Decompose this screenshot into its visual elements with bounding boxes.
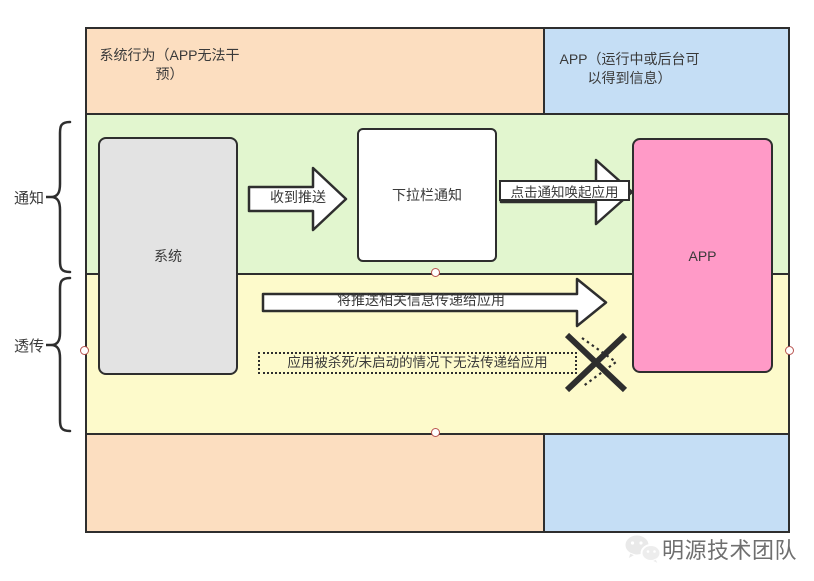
node-dropdown-label: 下拉栏通知 <box>392 185 462 205</box>
blocked-note-box: 应用被杀死/未启动的情况下无法传递给应用 <box>258 352 577 374</box>
connection-point <box>80 346 89 355</box>
diagram-canvas: 系统行为（APP无法干预） APP（运行中或后台可以得到信息） 通知 透传 系统… <box>0 0 814 581</box>
blocked-note-label: 应用被杀死/未启动的情况下无法传递给应用 <box>287 355 547 370</box>
node-system: 系统 <box>98 137 238 375</box>
node-app: APP <box>632 138 773 373</box>
arrow-click-notification-label: 点击通知唤起应用 <box>499 180 630 201</box>
lane-label-passthrough: 透传 <box>0 335 44 356</box>
footer-row <box>87 435 788 531</box>
header-title-app: APP（运行中或后台可以得到信息） <box>557 50 702 88</box>
connection-point <box>785 346 794 355</box>
brace-icon <box>46 276 74 433</box>
wechat-icon <box>622 531 662 567</box>
connection-point <box>431 428 440 437</box>
arrow-receive-push-label: 收到推送 <box>252 187 344 207</box>
watermark: 明源技术团队 <box>622 531 797 567</box>
watermark-text: 明源技术团队 <box>662 533 797 565</box>
footer-cell-system-behavior <box>87 435 543 531</box>
arrow-pass-info-label: 将推送相关信息传递给应用 <box>266 290 576 311</box>
connection-point <box>431 268 440 277</box>
node-app-label: APP <box>688 248 716 264</box>
header-title-system-behavior: 系统行为（APP无法干预） <box>97 46 242 84</box>
blocked-x-icon <box>556 328 636 398</box>
lane-label-notification: 通知 <box>0 187 44 208</box>
node-system-label: 系统 <box>154 246 182 266</box>
node-dropdown-notification: 下拉栏通知 <box>357 128 497 262</box>
brace-icon <box>46 120 74 274</box>
footer-cell-app <box>543 435 788 531</box>
